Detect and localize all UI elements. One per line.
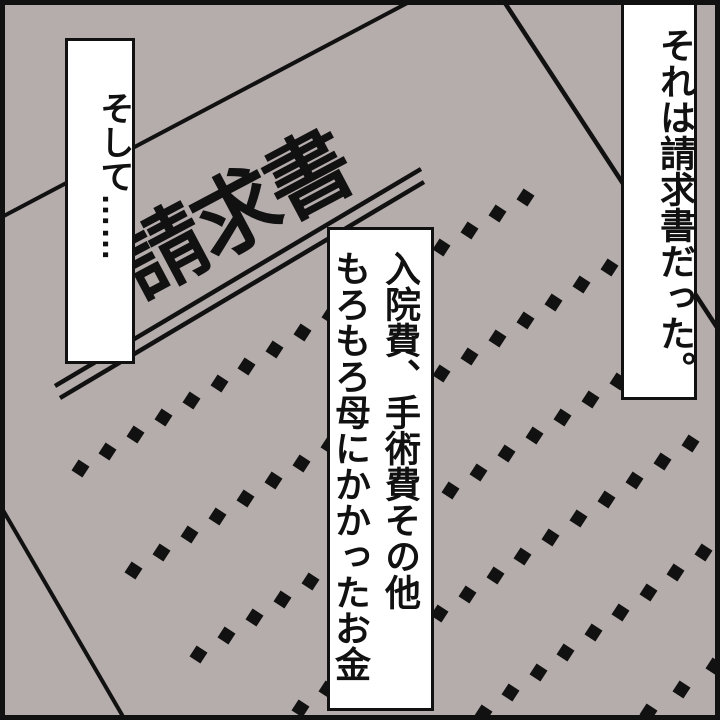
redacted-text-dot bbox=[502, 684, 520, 702]
redacted-text-dot bbox=[681, 434, 699, 452]
redacted-text-dot bbox=[474, 704, 492, 720]
redacted-text-dot bbox=[294, 324, 312, 342]
redacted-text-dot bbox=[597, 491, 615, 509]
redacted-text-dot bbox=[458, 585, 476, 603]
narration-box-left: そして…… bbox=[65, 38, 135, 364]
redacted-text-dot bbox=[99, 442, 117, 460]
redacted-text-dot bbox=[210, 374, 228, 392]
redacted-text-dot bbox=[433, 239, 451, 257]
redacted-text-dot bbox=[639, 583, 657, 601]
redacted-text-dot bbox=[672, 680, 690, 698]
narration-middle-line2: もろもろ母にかかったお金 bbox=[327, 250, 375, 688]
redacted-text-dot bbox=[497, 445, 515, 463]
redacted-text-dot bbox=[581, 390, 599, 408]
redacted-text-dot bbox=[557, 644, 575, 662]
redacted-text-dot bbox=[441, 481, 459, 499]
redacted-text-dot bbox=[291, 699, 309, 717]
redacted-text-dot bbox=[264, 472, 282, 490]
redacted-text-dot bbox=[71, 459, 89, 477]
narration-left-text: そして…… bbox=[95, 91, 133, 261]
redacted-text-dot bbox=[525, 427, 543, 445]
redacted-text-dot bbox=[572, 276, 590, 294]
narration-middle-line1: 入院費、手術費その他 bbox=[375, 250, 425, 688]
redacted-text-dot bbox=[516, 188, 534, 206]
narration-box-right: それは請求書だった。 bbox=[621, 0, 697, 400]
comic-panel: 請求書 それは請求書だった。 そして…… 入院費、手術費その他 もろもろ母にかか… bbox=[0, 0, 720, 720]
redacted-text-dot bbox=[529, 664, 547, 682]
redacted-text-dot bbox=[584, 624, 602, 642]
redacted-text-dot bbox=[273, 590, 291, 608]
redacted-text-dot bbox=[180, 525, 198, 543]
redacted-text-dot bbox=[460, 347, 478, 365]
redacted-text-dot bbox=[612, 603, 630, 621]
redacted-text-dot bbox=[544, 294, 562, 312]
redacted-text-dot bbox=[432, 365, 450, 383]
redacted-text-dot bbox=[154, 408, 172, 426]
redacted-text-dot bbox=[245, 609, 263, 627]
redacted-text-dot bbox=[488, 205, 506, 223]
redacted-text-dot bbox=[208, 508, 226, 526]
redacted-text-dot bbox=[189, 645, 207, 663]
redacted-text-dot bbox=[469, 463, 487, 481]
redacted-text-dot bbox=[542, 529, 560, 547]
redacted-text-dot bbox=[516, 311, 534, 329]
redacted-text-dot bbox=[486, 567, 504, 585]
redacted-text-dot bbox=[266, 340, 284, 358]
redacted-text-dot bbox=[694, 543, 712, 561]
redacted-text-dot bbox=[553, 408, 571, 426]
redacted-text-dot bbox=[667, 563, 685, 581]
redacted-text-dot bbox=[124, 561, 142, 579]
redacted-text-dot bbox=[514, 548, 532, 566]
redacted-text-dot bbox=[236, 490, 254, 508]
redacted-text-dot bbox=[600, 258, 618, 276]
redacted-text-dot bbox=[182, 391, 200, 409]
redacted-text-dot bbox=[152, 543, 170, 561]
redacted-text-dot bbox=[127, 425, 145, 443]
redacted-text-dot bbox=[653, 453, 671, 471]
redacted-text-dot bbox=[570, 510, 588, 528]
redacted-text-dot bbox=[705, 657, 720, 675]
redacted-text-dot bbox=[238, 357, 256, 375]
redacted-text-dot bbox=[625, 472, 643, 490]
narration-right-text: それは請求書だった。 bbox=[655, 27, 694, 397]
redacted-text-dot bbox=[488, 329, 506, 347]
redacted-text-dot bbox=[292, 454, 310, 472]
redacted-text-dot bbox=[460, 222, 478, 240]
narration-box-middle: 入院費、手術費その他 もろもろ母にかかったお金 bbox=[327, 227, 434, 711]
redacted-text-dot bbox=[217, 627, 235, 645]
redacted-text-dot bbox=[301, 572, 319, 590]
redacted-text-dot bbox=[639, 703, 657, 720]
